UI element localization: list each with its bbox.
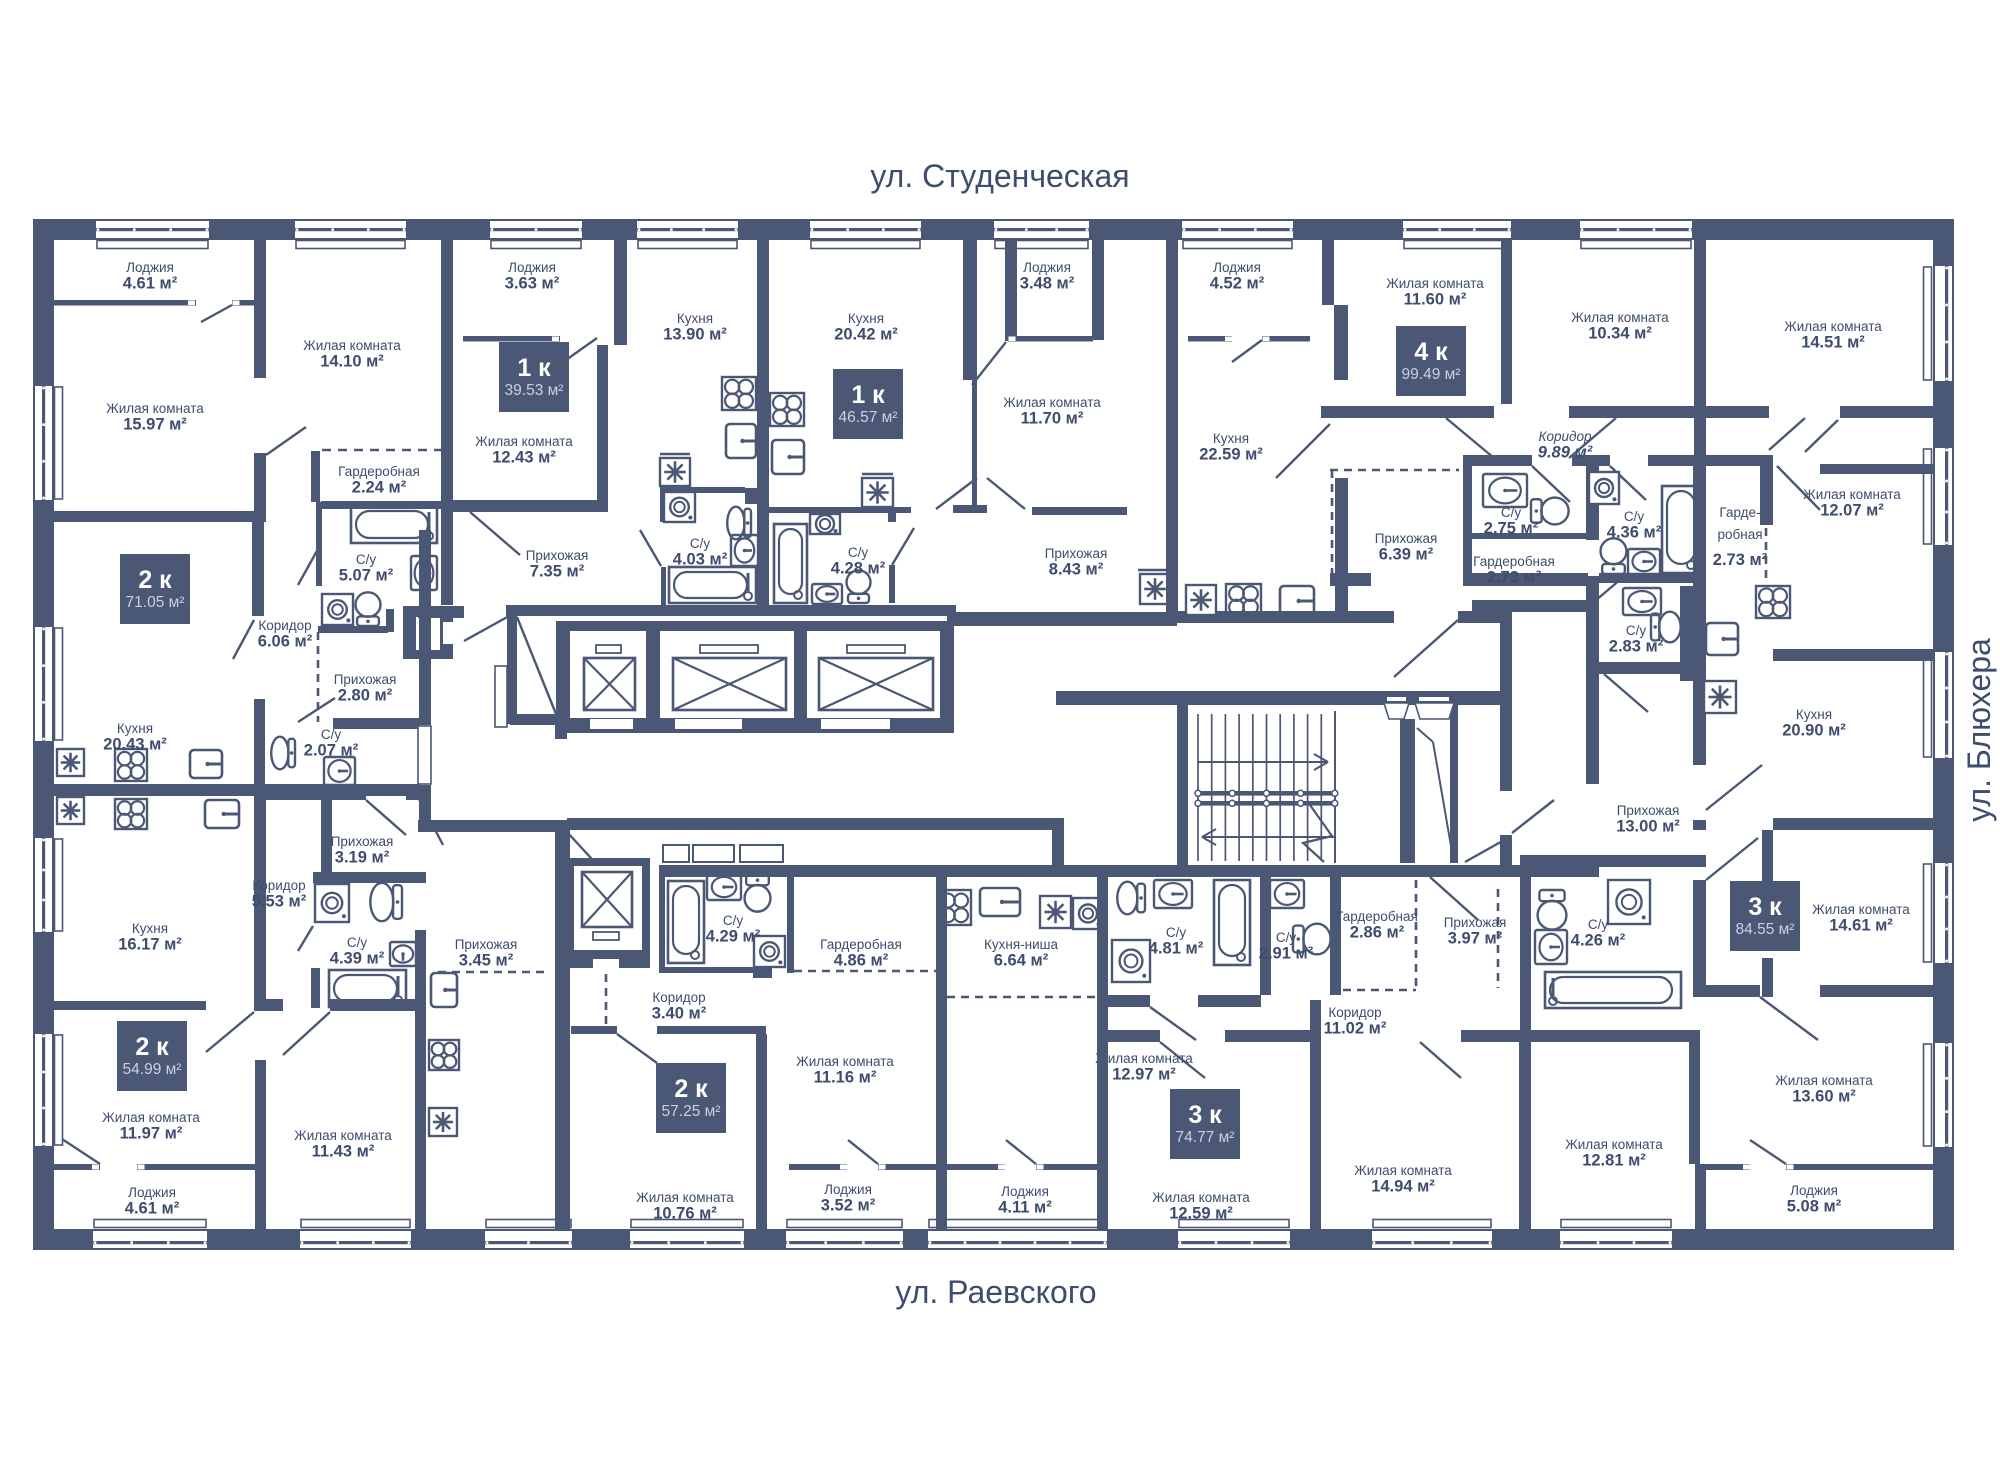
svg-text:11.97 м²: 11.97 м² [120, 1125, 183, 1143]
svg-text:Прихожая: Прихожая [455, 937, 518, 952]
svg-text:2 к: 2 к [138, 566, 172, 594]
svg-text:4 к: 4 к [1414, 338, 1448, 366]
svg-text:2.24 м²: 2.24 м² [352, 479, 407, 497]
svg-text:84.55 м²: 84.55 м² [1736, 921, 1795, 938]
svg-text:11.60 м²: 11.60 м² [1404, 291, 1467, 309]
svg-text:С/у: С/у [723, 913, 744, 928]
svg-text:11.02 м²: 11.02 м² [1324, 1020, 1387, 1038]
svg-text:Кухня: Кухня [132, 921, 168, 936]
svg-text:2.75 м²: 2.75 м² [1484, 520, 1539, 538]
svg-text:Кухня: Кухня [677, 311, 713, 326]
svg-text:5.07 м²: 5.07 м² [339, 567, 394, 585]
svg-text:5.53 м²: 5.53 м² [252, 893, 307, 911]
svg-text:3.97 м²: 3.97 м² [1448, 930, 1503, 948]
svg-text:Прихожая: Прихожая [1045, 546, 1108, 561]
svg-text:Прихожая: Прихожая [334, 672, 397, 687]
svg-text:Лоджия: Лоджия [824, 1182, 872, 1197]
svg-text:Жилая комната: Жилая комната [106, 401, 204, 416]
svg-text:11.70 м²: 11.70 м² [1021, 410, 1084, 428]
svg-text:Лоджия: Лоджия [508, 260, 556, 275]
svg-text:74.77 м²: 74.77 м² [1176, 1129, 1235, 1146]
svg-text:4.61 м²: 4.61 м² [123, 275, 178, 293]
svg-text:1 к: 1 к [517, 354, 551, 382]
svg-text:46.57 м²: 46.57 м² [839, 409, 898, 426]
svg-text:3.40 м²: 3.40 м² [652, 1005, 707, 1023]
svg-text:4.52 м²: 4.52 м² [1210, 275, 1265, 293]
svg-text:14.10 м²: 14.10 м² [320, 353, 384, 371]
svg-text:С/у: С/у [347, 935, 368, 950]
svg-text:Жилая комната: Жилая комната [1565, 1137, 1663, 1152]
svg-text:Жилая комната: Жилая комната [1386, 276, 1484, 291]
svg-text:10.76 м²: 10.76 м² [653, 1205, 717, 1223]
svg-text:4.03 м²: 4.03 м² [673, 551, 728, 569]
svg-text:3 к: 3 к [1188, 1101, 1222, 1129]
svg-text:Коридор: Коридор [258, 618, 311, 633]
svg-text:Кухня: Кухня [117, 721, 153, 736]
svg-text:С/у: С/у [690, 536, 711, 551]
svg-text:3.63 м²: 3.63 м² [505, 275, 560, 293]
svg-text:С/у: С/у [1588, 917, 1609, 932]
svg-text:71.05 м²: 71.05 м² [126, 594, 185, 611]
svg-text:2.91 м²: 2.91 м² [1259, 945, 1314, 963]
svg-text:3.19 м²: 3.19 м² [335, 849, 390, 867]
svg-text:Жилая комната: Жилая комната [1095, 1051, 1193, 1066]
svg-text:57.25 м²: 57.25 м² [662, 1103, 721, 1120]
svg-text:С/у: С/у [1626, 623, 1647, 638]
svg-text:Лоджия: Лоджия [128, 1185, 176, 1200]
svg-text:6.06 м²: 6.06 м² [258, 633, 313, 651]
svg-text:4.29 м²: 4.29 м² [706, 928, 761, 946]
svg-text:1 к: 1 к [851, 381, 885, 409]
svg-text:ул. Блюхера: ул. Блюхера [1961, 638, 1997, 822]
svg-text:Кухня-ниша: Кухня-ниша [984, 937, 1058, 952]
svg-text:15.97 м²: 15.97 м² [123, 416, 187, 434]
svg-text:2.83 м²: 2.83 м² [1609, 638, 1664, 656]
svg-text:4.36 м²: 4.36 м² [1607, 524, 1662, 542]
svg-text:Жилая комната: Жилая комната [1784, 319, 1882, 334]
svg-text:Гардеробная: Гардеробная [338, 464, 420, 479]
svg-text:Коридор: Коридор [1539, 429, 1592, 444]
svg-text:8.43 м²: 8.43 м² [1049, 561, 1104, 579]
svg-text:11.16 м²: 11.16 м² [814, 1069, 877, 1087]
svg-text:6.39 м²: 6.39 м² [1379, 546, 1434, 564]
svg-text:2.80 м²: 2.80 м² [338, 687, 393, 705]
svg-text:С/у: С/у [1501, 505, 1522, 520]
svg-text:99.49 м²: 99.49 м² [1402, 366, 1461, 383]
svg-text:4.86 м²: 4.86 м² [834, 952, 889, 970]
svg-text:Гардеробная: Гардеробная [1473, 554, 1555, 569]
svg-text:20.42 м²: 20.42 м² [834, 326, 898, 344]
svg-text:Жилая комната: Жилая комната [1152, 1190, 1250, 1205]
svg-text:Прихожая: Прихожая [1375, 531, 1438, 546]
svg-text:12.07 м²: 12.07 м² [1820, 502, 1884, 520]
svg-text:12.81 м²: 12.81 м² [1582, 1152, 1646, 1170]
svg-text:Прихожая: Прихожая [1444, 915, 1507, 930]
svg-text:Кухня: Кухня [1796, 707, 1832, 722]
svg-text:4.81 м²: 4.81 м² [1149, 940, 1204, 958]
svg-text:Лоджия: Лоджия [1213, 260, 1261, 275]
svg-text:Жилая комната: Жилая комната [796, 1054, 894, 1069]
svg-text:10.34 м²: 10.34 м² [1588, 325, 1652, 343]
svg-text:2 к: 2 к [135, 1033, 169, 1061]
svg-text:С/у: С/у [321, 727, 342, 742]
svg-text:4.26 м²: 4.26 м² [1571, 932, 1626, 950]
svg-text:Гардеробная: Гардеробная [820, 937, 902, 952]
svg-text:3.45 м²: 3.45 м² [459, 952, 514, 970]
svg-text:Жилая комната: Жилая комната [475, 434, 573, 449]
svg-text:Лоджия: Лоджия [126, 260, 174, 275]
svg-text:Жилая комната: Жилая комната [1003, 395, 1101, 410]
svg-text:ул. Раевского: ул. Раевского [895, 1274, 1096, 1310]
svg-text:6.64 м²: 6.64 м² [994, 952, 1049, 970]
svg-text:3 к: 3 к [1748, 893, 1782, 921]
svg-text:39.53 м²: 39.53 м² [505, 382, 564, 399]
svg-text:Жилая комната: Жилая комната [294, 1128, 392, 1143]
svg-text:Лоджия: Лоджия [1023, 260, 1071, 275]
svg-text:4.11 м²: 4.11 м² [998, 1199, 1052, 1217]
svg-text:2.07 м²: 2.07 м² [304, 742, 359, 760]
svg-text:3.52 м²: 3.52 м² [821, 1197, 876, 1215]
svg-text:Жилая комната: Жилая комната [1803, 487, 1901, 502]
svg-text:С/у: С/у [356, 552, 377, 567]
svg-text:12.59 м²: 12.59 м² [1169, 1205, 1233, 1223]
svg-text:2.86 м²: 2.86 м² [1350, 924, 1405, 942]
svg-text:С/у: С/у [1166, 925, 1187, 940]
svg-text:Прихожая: Прихожая [331, 834, 394, 849]
svg-text:13.60 м²: 13.60 м² [1792, 1088, 1856, 1106]
svg-text:4.39 м²: 4.39 м² [330, 950, 385, 968]
svg-text:Кухня: Кухня [848, 311, 884, 326]
svg-text:2.73 м²: 2.73 м² [1713, 551, 1768, 569]
svg-text:14.94 м²: 14.94 м² [1371, 1178, 1435, 1196]
svg-text:3.48 м²: 3.48 м² [1020, 275, 1075, 293]
svg-text:Коридор: Коридор [1328, 1005, 1381, 1020]
svg-text:12.97 м²: 12.97 м² [1112, 1066, 1176, 1084]
svg-text:Жилая комната: Жилая комната [636, 1190, 734, 1205]
svg-text:Кухня: Кухня [1213, 431, 1249, 446]
svg-text:Лоджия: Лоджия [1001, 1184, 1049, 1199]
svg-text:12.43 м²: 12.43 м² [492, 449, 556, 467]
svg-text:16.17 м²: 16.17 м² [118, 936, 182, 954]
svg-text:Жилая комната: Жилая комната [1571, 310, 1669, 325]
svg-text:14.61 м²: 14.61 м² [1829, 917, 1893, 935]
svg-text:Жилая комната: Жилая комната [102, 1110, 200, 1125]
svg-text:54.99 м²: 54.99 м² [123, 1061, 182, 1078]
svg-text:Жилая комната: Жилая комната [1812, 902, 1910, 917]
svg-text:9.89 м²: 9.89 м² [1538, 444, 1593, 462]
svg-text:Жилая комната: Жилая комната [303, 338, 401, 353]
svg-text:20.90 м²: 20.90 м² [1782, 722, 1846, 740]
svg-text:Гардеробная: Гардеробная [1336, 909, 1418, 924]
svg-text:ул. Студенческая: ул. Студенческая [870, 158, 1129, 194]
svg-text:2 к: 2 к [674, 1075, 708, 1103]
svg-text:Гарде-: Гарде- [1719, 505, 1760, 520]
svg-text:4.61 м²: 4.61 м² [125, 1200, 180, 1218]
svg-text:Прихожая: Прихожая [1617, 803, 1680, 818]
svg-text:С/у: С/у [1276, 930, 1297, 945]
svg-text:20.43 м²: 20.43 м² [103, 736, 167, 754]
svg-text:4.28 м²: 4.28 м² [831, 560, 886, 578]
svg-text:2.73 м²: 2.73 м² [1487, 569, 1542, 587]
svg-text:С/у: С/у [848, 545, 869, 560]
svg-text:Коридор: Коридор [252, 878, 305, 893]
svg-text:Жилая комната: Жилая комната [1354, 1163, 1452, 1178]
svg-text:11.43 м²: 11.43 м² [312, 1143, 375, 1161]
svg-text:13.90 м²: 13.90 м² [663, 326, 727, 344]
svg-text:14.51 м²: 14.51 м² [1801, 334, 1865, 352]
svg-text:13.00 м²: 13.00 м² [1616, 818, 1680, 836]
svg-text:Лоджия: Лоджия [1790, 1183, 1838, 1198]
svg-text:робная: робная [1717, 527, 1762, 542]
svg-text:С/у: С/у [1624, 509, 1645, 524]
svg-text:Жилая комната: Жилая комната [1775, 1073, 1873, 1088]
svg-text:7.35 м²: 7.35 м² [530, 563, 585, 581]
svg-text:Коридор: Коридор [652, 990, 705, 1005]
svg-text:22.59 м²: 22.59 м² [1199, 446, 1263, 464]
svg-text:5.08 м²: 5.08 м² [1787, 1198, 1842, 1216]
svg-text:Прихожая: Прихожая [526, 548, 589, 563]
